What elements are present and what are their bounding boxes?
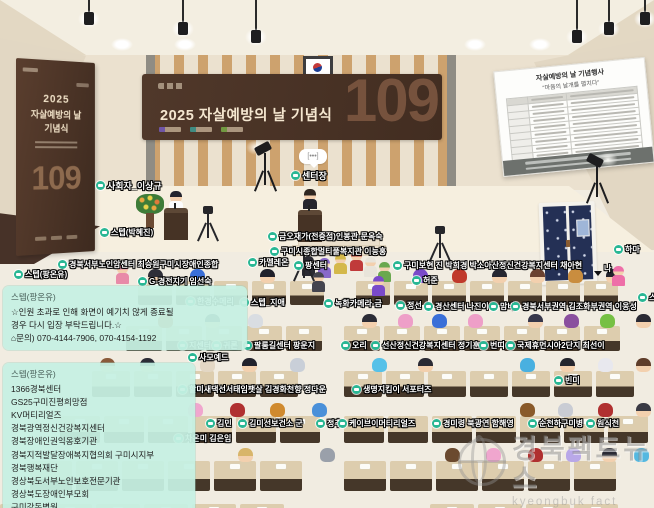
door-window (576, 219, 590, 236)
host-podium (164, 208, 188, 240)
standing-avatar[interactable] (334, 254, 347, 274)
sponsor-logo-icon (159, 127, 181, 132)
desk (428, 371, 466, 397)
spotlight-left (246, 140, 286, 198)
chat-bubble-icon (58, 260, 67, 269)
audience-avatar[interactable] (362, 314, 377, 328)
player-label: 국제휴먼시아2단지 최선이 (506, 340, 605, 351)
poster-number: 109 (16, 160, 95, 199)
pillar-right (447, 55, 456, 190)
player-label-text: 카멜레온 (259, 257, 288, 268)
player-label: 정선 (396, 300, 422, 311)
player-label: 스텝(박혜진) (100, 227, 153, 238)
chat-line: 1366경북센터 (11, 383, 187, 396)
watermark-subtitle: kyeongbuk fact news (512, 496, 654, 508)
player-label-text: 스텝(팡온유) (25, 269, 67, 280)
sponsor-logo-icon (221, 127, 243, 132)
poster-footer-logos (35, 235, 77, 241)
sponsor-logo-icon (190, 127, 212, 132)
audience-avatar[interactable] (568, 269, 583, 283)
taegeuk-icon (313, 63, 322, 72)
standing-avatar[interactable] (612, 266, 625, 286)
player-label: 녹화카메라-금 (324, 298, 382, 309)
audience-avatar[interactable] (260, 269, 275, 283)
player-label-text: 사모예드 (199, 352, 228, 363)
player-label: 카멜레온 (248, 257, 288, 268)
player-label: 사모예드 (188, 352, 228, 363)
audience-avatar[interactable] (492, 269, 507, 283)
player-label: 허준 (412, 275, 438, 286)
virtual-event-room: 2025 자살예방의 날 기념식 109 2025 자살예방의 날 기념식 10… (0, 0, 654, 508)
chat-line: 경북행복재단 (11, 462, 187, 475)
audience-avatar[interactable] (320, 448, 335, 462)
chat-bubble-icon (316, 419, 325, 428)
director-avatar[interactable] (303, 189, 317, 209)
poster-smalltext (35, 141, 77, 148)
desk (344, 461, 386, 491)
player-label-text: 정선 (407, 300, 422, 311)
player-label-text: 구미보현 진 박희경 박소아산정신건강복지센터 채아현 (404, 260, 582, 271)
player-label: 팔룸길센터 팡운지 (243, 340, 315, 351)
chat-bubble-icon (511, 302, 520, 311)
chat-bubble-icon (324, 299, 333, 308)
poster-line3: 기념식 (16, 120, 95, 135)
player-label-text: 경산센터 나진이 (435, 301, 489, 312)
player-label: 김미선보건소 군 (238, 418, 303, 429)
poster-year: 2025 (16, 92, 95, 107)
event-poster: 2025 자살예방의 날 기념식 109 (16, 58, 95, 256)
chat-line: 경상북도장애인부모회 (11, 488, 187, 501)
audience-avatar[interactable] (636, 314, 651, 328)
player-label-text: 허준 (423, 275, 438, 286)
audience-avatar[interactable] (270, 403, 285, 417)
player-label-text: 케이브이머티리얼즈 (349, 418, 415, 429)
audience-avatar[interactable] (372, 358, 387, 372)
chat-line: ☆인원 초과로 인해 화면이 예기치 않게 종료될 (11, 306, 239, 319)
chat-bubble-icon (614, 245, 623, 254)
player-label-text: 경북서부권역 김조화부권역 이웅성 (522, 301, 637, 312)
audience-avatar[interactable] (290, 358, 305, 372)
schedule-board: 자살예방의 날 기념행사 “마음의 날개를 펼치다” (493, 57, 654, 177)
banner-top-logo (158, 83, 184, 89)
watermark-title: 경북팩트뉴스 (512, 434, 654, 494)
chat-bubble-icon (424, 302, 433, 311)
desk (390, 461, 432, 491)
chat-line: 경북지적발달장애복지협의회 구미시지부 (11, 449, 187, 462)
chat-line: 경북광역정신건강복지센터 (11, 422, 187, 435)
desk (470, 371, 508, 397)
audience-avatar[interactable] (432, 314, 447, 328)
player-label-text: 스텝(박혜진) (111, 227, 153, 238)
banner-sponsor-logos (159, 127, 243, 132)
player-label: 나 (604, 263, 611, 274)
player-label-text: 나 (604, 263, 611, 274)
chat-bubble-icon (338, 419, 347, 428)
player-label: 김민 (206, 418, 232, 429)
chat-line: 구미강동병원... (11, 501, 187, 508)
player-label: 순천하구미병 (528, 418, 583, 429)
desk (192, 504, 236, 508)
spotlight-right (578, 152, 618, 210)
player-label: 스텝(팡온유) (14, 269, 67, 280)
player-label: 사회자_이상규 (96, 179, 162, 192)
player-label-text: 생명지킴이 서포터즈 (363, 384, 431, 395)
desk (240, 504, 284, 508)
player-label-text: 오리 (352, 340, 367, 351)
voice-indicator: [•••] (299, 149, 327, 164)
chat-line: KV머티리얼즈 (11, 409, 187, 422)
player-label: 스텝( (638, 292, 654, 303)
chat-bubble-icon (528, 419, 537, 428)
desk (260, 461, 302, 491)
director-body (303, 199, 317, 209)
player-label: 원식천 (586, 418, 619, 429)
ceiling-light-icon (174, 38, 196, 51)
audience-avatar[interactable] (248, 314, 263, 328)
audience-avatar[interactable] (528, 314, 543, 328)
door-knob-icon (566, 240, 570, 247)
chat-bubble-icon (206, 419, 215, 428)
player-label-text: 스텝( (649, 292, 654, 303)
audience-avatar[interactable] (636, 358, 651, 372)
audience-avatar[interactable] (468, 314, 483, 328)
chat-bubble-icon (270, 247, 279, 256)
player-label: 하마 (614, 244, 640, 255)
chat-bubble-icon (248, 258, 257, 267)
player-label: 센터장 (291, 169, 327, 182)
player-label: 할미새댁선서태임팻살 김경화천향 정다운 (178, 384, 326, 395)
player-label-text: 하마 (625, 244, 640, 255)
player-label-text: 센터장 (302, 169, 327, 182)
chat-bubble-icon (412, 276, 421, 285)
chat-bubble-icon (506, 341, 515, 350)
player-label-text: 경북서부노인암센터 최승원구미시장애인종합 (69, 259, 218, 270)
chat-bubble-icon (238, 419, 247, 428)
audience-avatar[interactable] (598, 403, 613, 417)
player-label-text: 빈미 (565, 375, 580, 386)
chat-bubble-icon (291, 171, 300, 180)
chat-bubble-icon (432, 419, 441, 428)
audience-avatar[interactable] (230, 403, 245, 417)
audience-avatar[interactable] (520, 403, 535, 417)
chat-bubble-icon (138, 277, 147, 286)
poster-logo-mark (23, 67, 38, 72)
chat-sender: 스텝(팡온유) (11, 368, 187, 380)
player-label-text: 녹화카메라-금 (335, 298, 382, 309)
player-label: 오리 (341, 340, 367, 351)
audience-avatar[interactable] (238, 448, 253, 462)
desk (596, 371, 634, 397)
chat-line: ⌂문의) 070-4144-7906, 070-4154-1192 (11, 332, 239, 345)
chat-bubble-icon (479, 341, 488, 350)
player-label-text: 번띠 (490, 340, 505, 351)
news-watermark: 경북팩트뉴스 kyeongbuk fact news (458, 434, 654, 508)
chat-line: 경상북도서부노인보호전문기관 (11, 475, 187, 488)
player-label-text: 원식천 (597, 418, 619, 429)
desk (214, 461, 256, 491)
stage-banner: 2025 자살예방의 날 기념식 109 (142, 74, 442, 140)
chat-bubble-icon (489, 302, 498, 311)
globe-icon (458, 438, 506, 486)
audience-avatar[interactable] (452, 269, 467, 283)
player-label-text: 경미령 북광연 함해영 (443, 418, 514, 429)
banner-number: 109 (344, 74, 438, 135)
player-label: 번띠 (479, 340, 505, 351)
chat-bubble-icon (188, 353, 197, 362)
chat-message-bubble: 스텝(팡온유)1366경북센터GS25구미진평희망점KV머티리얼즈경북광역정신건… (3, 363, 195, 508)
audience-avatar[interactable] (600, 314, 615, 328)
standing-avatar[interactable] (364, 257, 377, 277)
player-label-text: 할미새댁선서태임팻살 김경화천향 정다운 (189, 384, 326, 395)
audience-avatar[interactable] (598, 358, 613, 372)
player-label: 경북서부노인암센터 최승원구미시장애인종합 (58, 259, 218, 270)
chat-sender: 스텝(팡온유) (11, 291, 239, 303)
chat-bubble-icon (294, 261, 303, 270)
audience-avatar[interactable] (312, 403, 327, 417)
chat-line: GS25구미진평희망점 (11, 396, 187, 409)
chat-bubble-icon (638, 293, 647, 302)
audience-avatar[interactable] (398, 314, 413, 328)
player-label: 팡센터 (294, 260, 327, 271)
player-label: 구미시종합멀티풀복지관 이능홍 (270, 246, 386, 257)
chat-bubble-icon (352, 385, 361, 394)
ceiling-light-icon (464, 38, 486, 51)
audience-avatar[interactable] (520, 358, 535, 372)
standing-avatar[interactable] (372, 276, 385, 296)
player-label-text: 팔룸길센터 팡운지 (254, 340, 315, 351)
player-label-text: 구미시종합멀티풀복지관 이능홍 (281, 246, 386, 257)
chat-bubble-icon (341, 341, 350, 350)
player-label: 선산정신건강복지센터 정기훈 (371, 340, 480, 351)
audience-avatar[interactable] (418, 358, 433, 372)
flower-stand (136, 194, 164, 214)
chat-bubble-icon (396, 301, 405, 310)
chat-line: 경북장애인권익옹호기관 (11, 435, 187, 448)
audience-avatar[interactable] (530, 269, 545, 283)
chat-message-bubble: 스텝(팡온유)☆인원 초과로 인해 화면이 예기치 않게 종료될경우 다시 입장… (3, 286, 247, 350)
poster-tag-mark (76, 83, 88, 87)
player-label: 경산센터 나진이 (424, 301, 489, 312)
player-label-text: 순천하구미병 (539, 418, 583, 429)
chat-bubble-icon (393, 261, 402, 270)
player-label-text: 선산정신건강복지센터 정기훈 (382, 340, 480, 351)
desk (512, 371, 550, 397)
player-label: 금오재가(전증점)인봉관-문옥숙 (268, 231, 383, 242)
camera-tripod-right (428, 226, 452, 264)
ceiling-light-icon (111, 38, 133, 51)
player-label: 경북서부권역 김조화부권역 이웅성 (511, 301, 637, 312)
audience-avatar[interactable] (636, 403, 651, 417)
player-label-text: 김미선보건소 군 (249, 418, 303, 429)
audience-avatar[interactable] (242, 358, 257, 372)
chat-bubble-icon (96, 181, 105, 190)
player-label: 생명지킴이 서포터즈 (352, 384, 431, 395)
player-label-text: 팡센터 (305, 260, 327, 271)
selected-player-arrow-icon (594, 271, 602, 280)
chat-bubble-icon (268, 232, 277, 241)
ceiling-light-icon (529, 38, 551, 51)
player-label-text: 사회자_이상규 (107, 179, 162, 192)
player-label-text: 김민 (217, 418, 232, 429)
audience-avatar[interactable] (558, 403, 573, 417)
chat-bubble-icon (586, 419, 595, 428)
chat-line: 경우 다시 입장 부탁드립니다.☆ (11, 319, 239, 332)
audience-avatar[interactable] (564, 314, 579, 328)
player-label: 빈미 (554, 375, 580, 386)
banner-title: 2025 자살예방의 날 기념식 (160, 104, 332, 125)
chat-bubble-icon (100, 228, 109, 237)
chat-bubble-icon (14, 270, 23, 279)
chat-bubble-icon (371, 341, 380, 350)
player-label: 구미보현 진 박희경 박소아산정신건강복지센터 채아현 (393, 260, 582, 271)
player-label: 경미령 북광연 함해영 (432, 418, 514, 429)
player-label: 케이브이머티리얼즈 (338, 418, 415, 429)
audience-avatar[interactable] (560, 358, 575, 372)
chat-bubble-icon (554, 376, 563, 385)
player-label-text: 스텝_지애 (251, 297, 285, 308)
player-label-text: 금오재가(전증점)인봉관-문옥숙 (279, 231, 383, 242)
ceiling (0, 0, 654, 55)
camera-tripod-left (196, 206, 220, 244)
player-label-text: 국제휴먼시아2단지 최선이 (517, 340, 605, 351)
